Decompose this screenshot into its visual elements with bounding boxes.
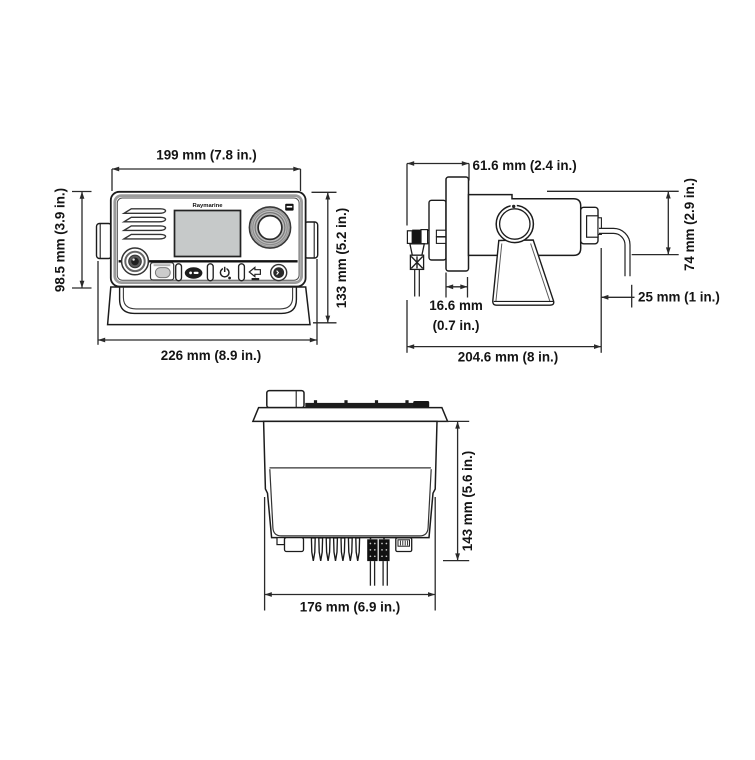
svg-text:Raymarine: Raymarine (192, 203, 223, 209)
svg-text:25 mm (1 in.): 25 mm (1 in.) (638, 290, 720, 305)
svg-text:16.6 mm: 16.6 mm (429, 298, 483, 313)
svg-text:98.5 mm (3.9 in.): 98.5 mm (3.9 in.) (53, 188, 68, 292)
svg-text:204.6 mm (8 in.): 204.6 mm (8 in.) (458, 349, 558, 364)
svg-text:143 mm (5.6 in.): 143 mm (5.6 in.) (460, 451, 475, 551)
svg-text:133 mm (5.2 in.): 133 mm (5.2 in.) (334, 208, 349, 308)
svg-text:176 mm (6.9 in.): 176 mm (6.9 in.) (300, 599, 400, 614)
svg-text:226 mm (8.9 in.): 226 mm (8.9 in.) (161, 348, 261, 363)
svg-text:61.6 mm (2.4 in.): 61.6 mm (2.4 in.) (473, 158, 577, 173)
svg-text:(0.7 in.): (0.7 in.) (433, 318, 480, 333)
svg-text:74 mm (2.9 in.): 74 mm (2.9 in.) (682, 178, 697, 271)
svg-text:199 mm (7.8 in.): 199 mm (7.8 in.) (156, 147, 256, 162)
